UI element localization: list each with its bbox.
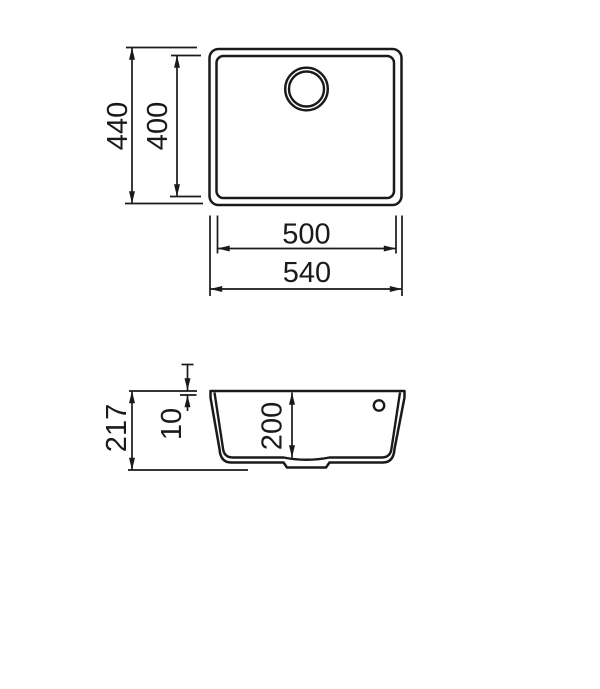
dim-label-overall-height: 217	[101, 404, 133, 452]
dim-label-rim-thickness: 10	[156, 408, 188, 440]
dimension-400: 400	[142, 56, 201, 197]
dimension-500: 500	[218, 216, 397, 254]
technical-drawing-sheet: 440 400 500 540	[0, 0, 600, 689]
dim-label-inner-width: 500	[282, 219, 330, 251]
dim-label-bowl-depth: 200	[257, 402, 289, 450]
dim-label-overall-width: 540	[283, 257, 331, 289]
sink-side-view	[211, 391, 405, 468]
dim-label-overall-depth: 440	[102, 102, 134, 150]
sink-bowl-edge-top-view	[217, 56, 395, 198]
sink-top-view	[210, 49, 402, 205]
dim-label-inner-depth: 400	[142, 102, 174, 150]
sink-dimension-diagram: 440 400 500 540	[0, 0, 600, 689]
dimension-200: 200	[257, 393, 293, 458]
dimension-10: 10	[156, 365, 197, 441]
